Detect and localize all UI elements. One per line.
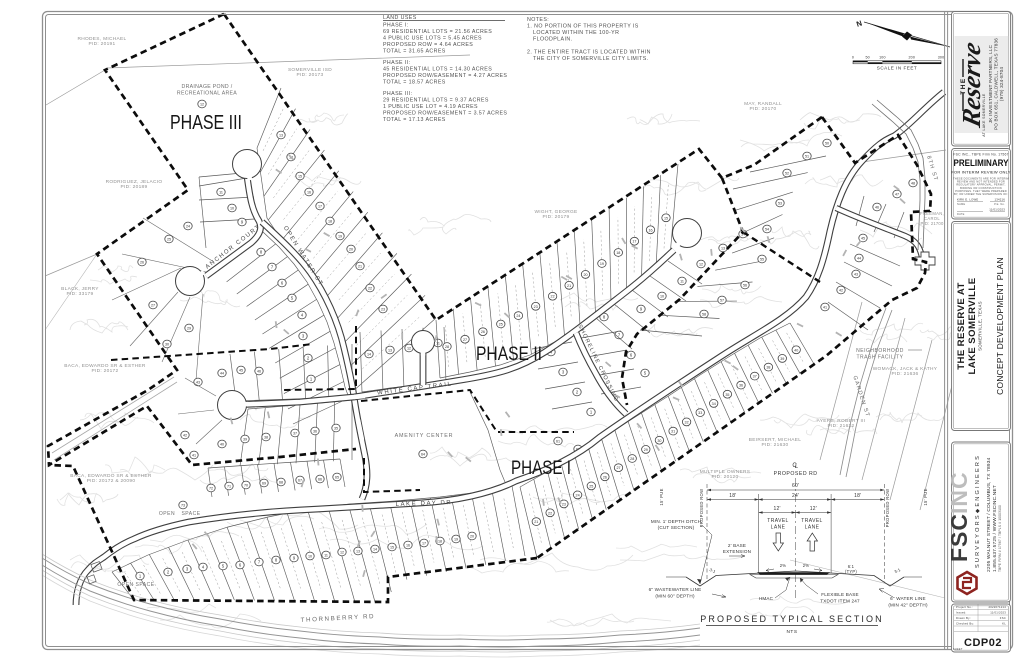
svg-text:53: 53 [778,202,782,206]
svg-text:TOTAL = 18.57 ACRES: TOTAL = 18.57 ACRES [383,80,446,86]
svg-text:36: 36 [739,384,743,388]
svg-text:18: 18 [328,220,332,224]
svg-text:Drawn By:: Drawn By: [956,616,971,620]
svg-text:(TYP): (TYP) [845,569,857,574]
svg-text:PID: 21632: PID: 21632 [827,423,854,429]
svg-text:Checked By:: Checked By: [956,622,974,626]
svg-text:42: 42 [839,289,843,293]
svg-text:44: 44 [857,257,861,261]
svg-text:41: 41 [823,306,827,310]
svg-text:23: 23 [381,308,385,312]
svg-text:13: 13 [356,550,360,554]
svg-text:2%: 2% [803,563,810,568]
svg-text:45 RESIDENTIAL LOTS = 14.3: 45 RESIDENTIAL LOTS = 14.30 ACRES [383,67,492,73]
svg-text:20: 20 [583,273,587,277]
svg-text:22: 22 [368,287,372,291]
svg-text:12: 12 [340,551,344,555]
svg-text:FSC INC., TBPE Firm No. 17567: FSC INC., TBPE Firm No. 17567 [953,153,1008,157]
svg-text:DATE: DATE [957,212,965,216]
svg-text:KIRK E. LOWE: KIRK E. LOWE [957,198,978,202]
svg-text:12: 12 [407,347,411,351]
svg-text:29 RESIDENTIAL LOTS = 9.37: 29 RESIDENTIAL LOTS = 9.37 ACRES [383,98,489,104]
svg-text:33: 33 [698,411,702,415]
svg-text:14: 14 [367,353,371,357]
svg-text:SOMERVILLE, TEXAS: SOMERVILLE, TEXAS [978,301,983,351]
svg-text:43: 43 [854,273,858,277]
svg-text:PID: 20179: PID: 20179 [542,214,569,220]
svg-text:PHASE II:: PHASE II: [383,60,410,66]
svg-text:PID: 21700: PID: 21700 [921,221,944,226]
svg-text:29: 29 [644,448,648,452]
svg-text:24: 24 [576,494,580,498]
svg-text:4 PUBLIC USE LOTS = 5.45: 4 PUBLIC USE LOTS = 5.45 ACRES [383,36,482,42]
svg-text:46: 46 [257,370,261,374]
svg-text:PID: 20170: PID: 20170 [749,106,776,112]
svg-text:19: 19 [338,235,342,239]
svg-text:AYERS, ROBERT III: AYERS, ROBERT III [817,418,866,424]
svg-text:PHASE II: PHASE II [476,344,542,365]
svg-text:PID: 20120: PID: 20120 [711,474,738,480]
svg-text:58: 58 [702,313,706,317]
svg-text:73: 73 [181,504,185,508]
svg-text:NAME: NAME [957,202,965,206]
svg-text:68: 68 [279,481,283,485]
svg-text:50: 50 [825,142,829,146]
svg-text:FLOODPLAIN.: FLOODPLAIN. [533,37,572,43]
svg-text:FLEXIBLE BASE: FLEXIBLE BASE [821,592,859,597]
svg-text:16: 16 [307,191,311,195]
svg-text:WIGHT, GEORGE: WIGHT, GEORGE [534,209,577,215]
svg-text:AMENITY CENTER: AMENITY CENTER [395,433,454,439]
svg-text:AT LAKE SOMERVILLE: AT LAKE SOMERVILLE [982,93,986,137]
svg-text:26: 26 [603,475,607,479]
svg-text:71: 71 [227,485,231,489]
svg-text:PROPOSED RD: PROPOSED RD [774,471,818,477]
svg-text:16: 16 [648,228,652,232]
svg-text:TRASH FACILITY: TRASH FACILITY [856,355,903,361]
svg-text:43: 43 [196,381,200,385]
svg-text:PROPOSED TYPICAL SECTION: PROPOSED TYPICAL SECTION [700,614,883,624]
svg-text:23: 23 [562,503,566,507]
svg-text:12: 12 [699,263,703,267]
svg-text:72: 72 [209,487,213,491]
svg-text:28: 28 [630,457,634,461]
svg-text:BY, OR UNDER THE SUPERVISION O: BY, OR UNDER THE SUPERVISION OF: [954,192,1008,196]
svg-text:10: 10 [660,295,664,299]
svg-text:10: 10 [230,207,234,211]
svg-text:RHODES, MICHAEL: RHODES, MICHAEL [77,36,126,42]
svg-text:65: 65 [335,476,339,480]
svg-text:(CUT SECTION): (CUT SECTION) [658,525,695,530]
svg-text:25: 25 [499,323,503,327]
svg-text:PROPOSED ROW/EASEMENT = 4.2: PROPOSED ROW/EASEMENT = 4.27 ACRES [383,73,507,79]
svg-text:54: 54 [765,228,769,232]
svg-text:18: 18 [438,540,442,544]
svg-text:300: 300 [938,56,945,60]
svg-text:38: 38 [766,366,770,370]
svg-text:24': 24' [792,493,799,499]
svg-text:35: 35 [334,427,338,431]
svg-text:SURVEYORS◆ENGINEERS: SURVEYORS◆ENGINEERS [975,454,981,568]
svg-text:PHASE I: PHASE I [511,458,571,479]
svg-text:(MIN 42" DEPTH): (MIN 42" DEPTH) [888,603,928,608]
svg-text:LOCATED WITHIN THE 100-YR: LOCATED WITHIN THE 100-YR [533,30,619,36]
svg-text:EXTENSION: EXTENSION [723,549,751,554]
svg-text:30: 30 [165,343,169,347]
svg-text:22: 22 [548,511,552,515]
svg-text:BACA, EDWARDO SR & ESTHER: BACA, EDWARDO SR & ESTHER [70,473,152,479]
svg-text:6" WATER LINE: 6" WATER LINE [890,596,926,601]
svg-text:JK INVESTMENT PARTNERS, LLC: JK INVESTMENT PARTNERS, LLC [988,44,993,123]
svg-text:PHASE I:: PHASE I: [383,23,409,29]
svg-text:21: 21 [534,520,538,524]
svg-text:MAY, RANDALL: MAY, RANDALL [744,101,782,107]
svg-text:46: 46 [875,206,879,210]
svg-text:WOMACK, JACK & KATHY: WOMACK, JACK & KATHY [873,366,938,372]
svg-text:RECREATIONAL AREA: RECREATIONAL AREA [177,91,237,97]
svg-text:THE: THE [960,77,967,95]
svg-text:L: L [795,464,798,470]
svg-text:45: 45 [239,369,243,373]
svg-text:69: 69 [262,482,266,486]
svg-text:TOTAL = 17.13 ACRES: TOTAL = 17.13 ACRES [383,117,446,123]
svg-text:BEIRSERT, MICHAEL: BEIRSERT, MICHAEL [749,437,801,443]
svg-text:BACA, EDWARDO SR & ESTHER: BACA, EDWARDO SR & ESTHER [64,363,146,369]
svg-text:13: 13 [388,349,392,353]
svg-text:NEIGHBORHOOD: NEIGHBORHOOD [856,348,904,354]
svg-text:BLACK, JERRY: BLACK, JERRY [61,286,99,292]
svg-text:22: 22 [551,295,555,299]
svg-text:55: 55 [760,258,764,262]
svg-text:2' BASE: 2' BASE [728,543,746,548]
svg-text:TRAVEL: TRAVEL [801,518,822,524]
svg-text:2. THE ENTIRE TRACT IS LOC: 2. THE ENTIRE TRACT IS LOCATED WITHIN [527,50,651,56]
svg-text:27: 27 [151,304,155,308]
svg-text:40: 40 [220,443,224,447]
svg-text:FOR INTERIM REVIEW ONLY: FOR INTERIM REVIEW ONLY [951,170,1010,175]
svg-text:60': 60' [792,483,799,489]
svg-text:39: 39 [243,438,247,442]
svg-text:TRAVEL: TRAVEL [767,518,788,524]
svg-text:LAKE SOMERVILLE: LAKE SOMERVILLE [967,277,978,374]
svg-text:DRAINAGE POND /: DRAINAGE POND / [182,84,233,90]
svg-text:PID: 20172 & 20090: PID: 20172 & 20090 [87,478,136,484]
svg-text:28: 28 [445,345,449,349]
svg-text:17: 17 [318,205,322,209]
svg-text:48: 48 [911,182,915,186]
svg-text:200: 200 [908,56,915,60]
svg-text:35: 35 [725,393,729,397]
svg-text:15: 15 [390,546,394,550]
svg-text:38: 38 [264,436,268,440]
svg-text:OPEN: OPEN [159,511,175,517]
svg-text:10: 10 [308,555,312,559]
svg-text:LANE: LANE [771,525,786,531]
svg-text:CDP02: CDP02 [964,637,1002,649]
svg-text:44: 44 [220,372,224,376]
svg-text:61: 61 [556,440,560,444]
svg-text:67: 67 [298,479,302,483]
svg-text:11: 11 [680,280,684,284]
svg-text:PID: 20191: PID: 20191 [88,41,115,47]
svg-text:PID: 20189: PID: 20189 [120,184,147,190]
svg-text:26: 26 [140,261,144,265]
svg-text:OPEN SPACE: OPEN SPACE [117,582,154,588]
svg-text:36: 36 [313,430,317,434]
svg-text:1 PUBLIC USE LOT = 4.19 A: 1 PUBLIC USE LOT = 4.19 ACRES [383,104,478,110]
svg-text:56: 56 [743,284,747,288]
svg-text:17: 17 [632,240,636,244]
svg-text:SOMERVILLE ISD: SOMERVILLE ISD [288,67,332,73]
svg-text:12: 12 [200,103,204,107]
svg-text:NTS: NTS [786,629,797,635]
svg-text:12': 12' [810,506,817,512]
svg-text:30: 30 [657,439,661,443]
svg-text:29: 29 [187,327,191,331]
svg-text:15' PUE: 15' PUE [923,488,928,505]
svg-text:11: 11 [324,554,328,558]
svg-text:25: 25 [167,238,171,242]
svg-text:40: 40 [794,348,798,352]
svg-text:SHEET: SHEET [953,647,963,651]
svg-text:THE CITY OF SOMERVILLE CIT: THE CITY OF SOMERVILLE CITY LIMITS. [533,56,649,62]
svg-text:(MIN 60" DEPTH): (MIN 60" DEPTH) [655,594,695,599]
svg-text:20: 20 [470,535,474,539]
svg-text:PID: 33179: PID: 33179 [66,291,93,297]
svg-text:PHASE III:: PHASE III: [383,91,412,97]
svg-text:15: 15 [664,216,668,220]
svg-text:Issued:: Issued: [956,611,966,615]
svg-text:64: 64 [421,453,425,457]
svg-text:MIN. 1' DEPTH DITCH: MIN. 1' DEPTH DITCH [651,519,701,524]
svg-text:100: 100 [879,56,886,60]
svg-text:32: 32 [685,421,689,425]
svg-text:TBPE FIRM # 17567 / TBPLS # 10: TBPE FIRM # 17567 / TBPLS # 10003100 [998,505,1002,572]
svg-text:KL: KL [1002,622,1006,626]
svg-text:2022071214: 2022071214 [988,605,1006,609]
svg-text:26: 26 [481,330,485,334]
svg-text:31: 31 [671,430,675,434]
svg-text:FSC: FSC [946,513,972,562]
svg-text:17: 17 [422,542,426,546]
svg-text:PID: 21636: PID: 21636 [891,371,918,377]
svg-text:PRELIMINARY: PRELIMINARY [954,158,1009,168]
svg-text:CONCEPT DEVELOPMENT PLAN: CONCEPT DEVELOPMENT PLAN [995,257,1005,395]
svg-text:TOTAL = 31.65 ACRES: TOTAL = 31.65 ACRES [383,49,446,55]
svg-text:LANE: LANE [805,525,820,531]
svg-text:57: 57 [720,299,724,303]
svg-text:HMAC: HMAC [759,596,774,601]
svg-text:41: 41 [192,454,196,458]
svg-text:20: 20 [349,248,353,252]
svg-text:SPACE: SPACE [181,511,200,517]
svg-text:2%: 2% [780,563,787,568]
svg-text:15' PUE: 15' PUE [659,488,664,505]
svg-text:TXDOT ITEM 247: TXDOT ITEM 247 [820,599,860,604]
svg-text:6" WASTEWATER LINE: 6" WASTEWATER LINE [649,587,702,592]
svg-text:51: 51 [805,155,809,159]
svg-text:MULTIPLE OWNERS: MULTIPLE OWNERS [700,469,751,475]
svg-text:21: 21 [358,265,362,269]
svg-text:PID: 20173: PID: 20173 [296,72,323,78]
svg-text:14: 14 [373,548,377,552]
svg-text:19: 19 [454,538,458,542]
svg-text:16: 16 [406,544,410,548]
svg-text:15: 15 [298,175,302,179]
svg-text:25: 25 [589,485,593,489]
svg-text:27: 27 [463,338,467,342]
svg-text:27: 27 [616,466,620,470]
svg-text:50: 50 [865,56,869,60]
svg-text:NOTES:: NOTES: [527,17,549,23]
svg-text:21: 21 [567,284,571,288]
svg-text:PROPOSED ROW: PROPOSED ROW [885,489,890,528]
svg-text:24: 24 [516,314,520,318]
svg-text:1. NO PORTION OF THIS PROP: 1. NO PORTION OF THIS PROPERTY IS [527,24,639,30]
svg-text:66: 66 [318,478,322,482]
svg-text:24: 24 [186,225,190,229]
svg-text:37: 37 [293,432,297,436]
svg-text:18: 18 [616,251,620,255]
svg-text:69 RESIDENTIAL LOTS = 21.5: 69 RESIDENTIAL LOTS = 21.56 ACRES [383,29,492,35]
svg-text:13: 13 [721,247,725,251]
svg-text:34: 34 [712,402,716,406]
svg-text:Project No.:: Project No.: [956,605,973,609]
svg-text:42: 42 [183,434,187,438]
svg-text:THE RESERVE AT: THE RESERVE AT [956,282,967,370]
svg-text:INC: INC [946,471,972,514]
svg-text:23: 23 [534,305,538,309]
svg-text:LAND USES: LAND USES [383,15,417,21]
svg-text:2205 WALNUT STREET / COLUMBUS,: 2205 WALNUT STREET / COLUMBUS, TX 78934 [986,457,992,572]
svg-text:FSC: FSC [1000,616,1006,620]
svg-text:PHASE III: PHASE III [170,112,242,134]
svg-text:70: 70 [244,484,248,488]
svg-text:PID: 20172: PID: 20172 [91,368,118,374]
svg-text:11/01/2023: 11/01/2023 [989,208,1005,212]
svg-text:11/01/2023: 11/01/2023 [990,611,1006,615]
svg-text:52: 52 [785,172,789,176]
svg-text:PID: 21630: PID: 21630 [761,442,788,448]
svg-text:PROPOSED ROW = 4.64 ACRES: PROPOSED ROW = 4.64 ACRES [383,42,473,48]
svg-text:39: 39 [780,357,784,361]
svg-text:RODRIGUEZ, JELACIO: RODRIGUEZ, JELACIO [106,179,163,185]
svg-text:PROPOSED ROW/EASEMENT = 3.5: PROPOSED ROW/EASEMENT = 3.57 ACRES [383,111,507,117]
svg-text:18': 18' [854,493,861,499]
svg-text:13: 13 [279,134,283,138]
svg-text:11: 11 [219,191,223,195]
svg-text:47: 47 [895,193,899,197]
svg-text:(979) 324-8704: (979) 324-8704 [999,67,1004,101]
svg-text:PO BOX 651, CALDWELL, TEXAS 77: PO BOX 651, CALDWELL, TEXAS 77836 [994,38,999,130]
svg-text:P.E. No.: P.E. No. [994,202,1005,206]
svg-text:134216: 134216 [994,198,1005,202]
svg-text:0: 0 [852,56,854,60]
svg-text:SCALE IN FEET: SCALE IN FEET [877,66,917,71]
svg-text:18': 18' [729,493,736,499]
svg-text:12': 12' [774,506,781,512]
svg-text:45: 45 [861,237,865,241]
svg-text:37: 37 [753,375,757,379]
svg-text:19: 19 [600,262,604,266]
